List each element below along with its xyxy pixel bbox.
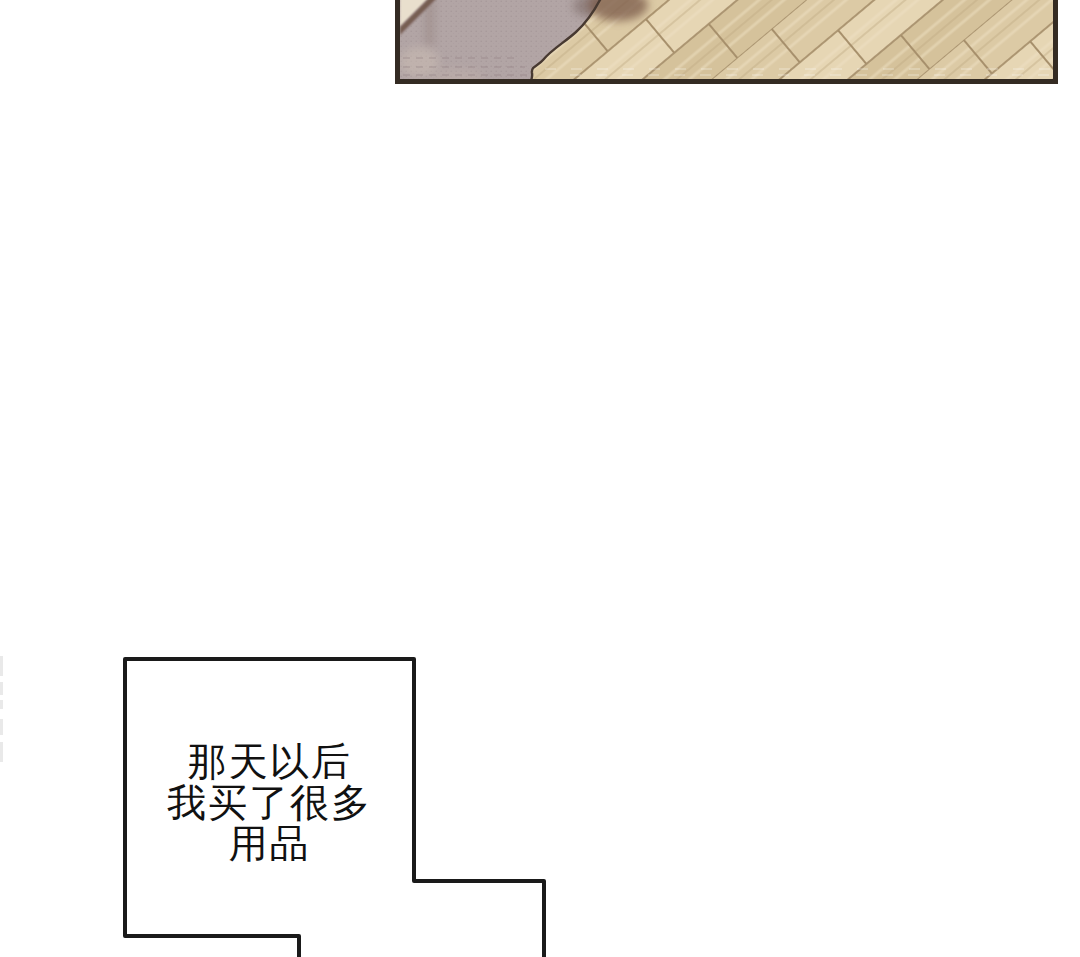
- comic-page: 那天以后 我买了很多 用品: [0, 0, 1080, 957]
- caption-line-1: 那天以后: [188, 741, 352, 782]
- caption-line-3: 用品: [229, 823, 311, 864]
- caption-text: 那天以后 我买了很多 用品: [125, 661, 414, 933]
- caption-line-2: 我买了很多: [167, 782, 372, 823]
